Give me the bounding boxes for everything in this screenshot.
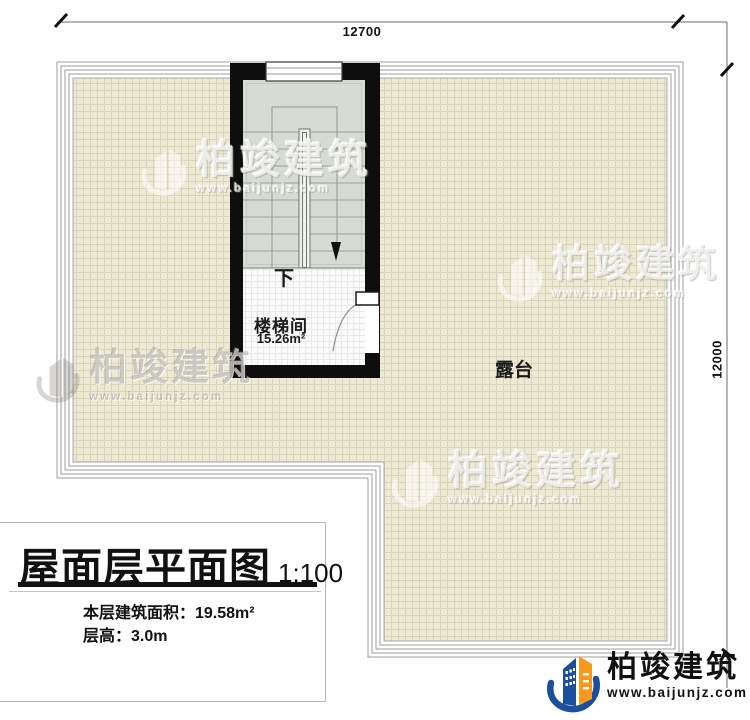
floor-area-line: 本层建筑面积：19.58m² xyxy=(83,599,255,623)
company-website: www.baijunjz.com xyxy=(607,685,748,700)
window xyxy=(266,62,342,81)
dimension-top: 12700 xyxy=(320,24,404,39)
stair-room-area: 15.26m² xyxy=(233,331,329,346)
dimension-right: 12000 xyxy=(710,329,725,391)
baijun-logo-icon xyxy=(543,651,603,713)
stair-handrail xyxy=(299,129,310,268)
stair-direction-label: 下 xyxy=(266,262,302,291)
terrace-label: 露台 xyxy=(464,355,564,382)
company-logo: 柏竣建筑 www.baijunjz.com xyxy=(543,651,748,713)
company-name: 柏竣建筑 xyxy=(607,651,748,684)
floor-height-line: 层高：3.0m xyxy=(83,622,167,646)
title-rule-thin xyxy=(9,591,321,592)
floor-plan-page: 柏竣建筑 www.baijunjz.com 柏竣建筑 www.baijunjz.… xyxy=(0,0,750,720)
title-rule-thick xyxy=(18,582,317,587)
title-block: 屋面层平面图 1:100 本层建筑面积：19.58m² 层高：3.0m xyxy=(0,522,326,702)
